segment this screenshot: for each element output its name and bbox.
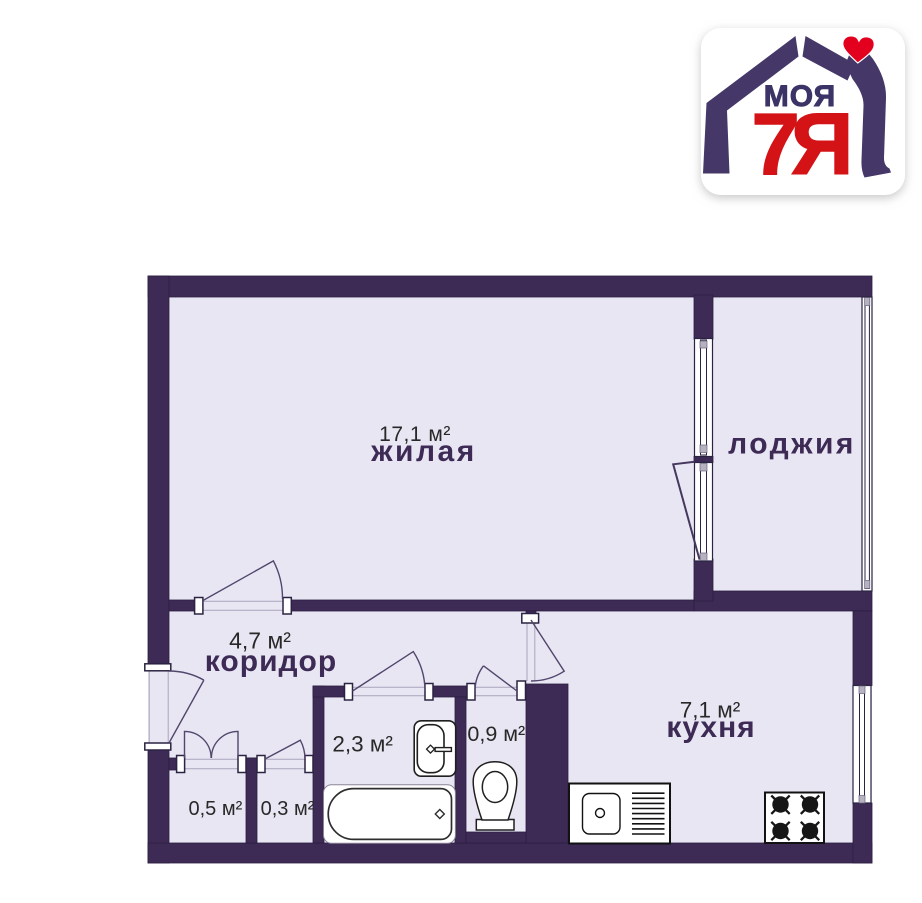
svg-text:0,3 м²: 0,3 м²	[261, 798, 315, 820]
svg-text:кухня: кухня	[666, 711, 755, 744]
svg-text:2,3 м²: 2,3 м²	[332, 732, 393, 757]
svg-text:жилая: жилая	[370, 435, 476, 468]
svg-text:7Я: 7Я	[752, 96, 848, 193]
svg-text:0,9 м²: 0,9 м²	[467, 722, 525, 746]
svg-text:0,5 м²: 0,5 м²	[189, 798, 243, 820]
svg-text:лоджия: лоджия	[728, 428, 856, 461]
svg-text:коридор: коридор	[205, 645, 337, 678]
